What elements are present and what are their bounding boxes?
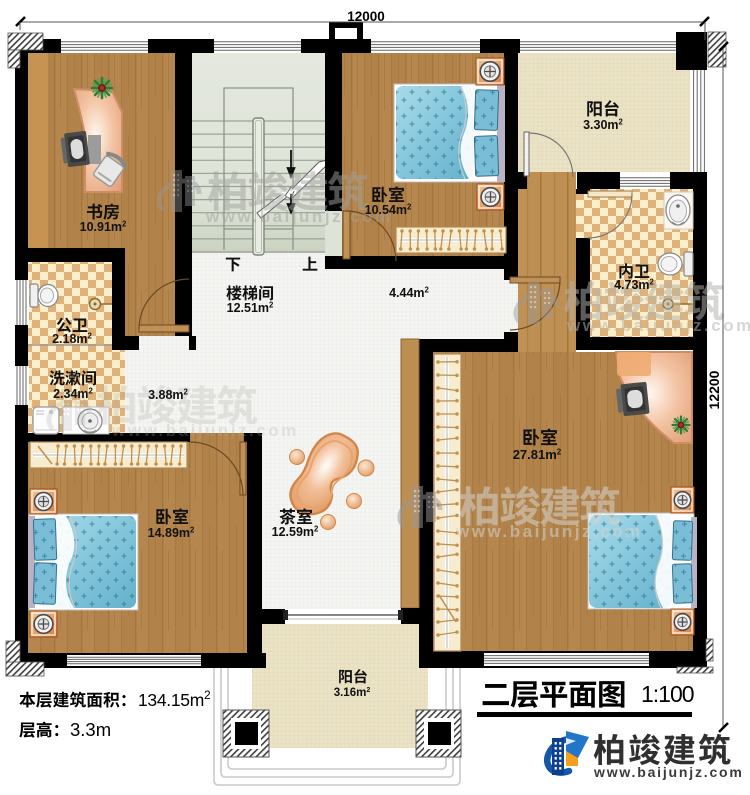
- svg-text:12.59m2: 12.59m2: [272, 525, 319, 539]
- svg-text:12200: 12200: [706, 370, 722, 409]
- svg-text:www.baijunjz.com: www.baijunjz.com: [593, 764, 744, 780]
- svg-text:12.51m2: 12.51m2: [227, 301, 274, 315]
- svg-text:27.81m2: 27.81m2: [513, 447, 562, 462]
- svg-text:134.15m2: 134.15m2: [138, 688, 211, 710]
- svg-text:1:100: 1:100: [641, 681, 694, 707]
- svg-text:4.44m2: 4.44m2: [389, 286, 429, 300]
- svg-text:3.88m2: 3.88m2: [148, 388, 188, 402]
- svg-text:2.18m2: 2.18m2: [52, 332, 92, 346]
- svg-text:2.34m2: 2.34m2: [53, 387, 93, 401]
- svg-text:12000: 12000: [347, 9, 385, 24]
- svg-text:www.baijunjz.com: www.baijunjz.com: [111, 421, 299, 440]
- svg-text:14.89m2: 14.89m2: [148, 526, 195, 540]
- svg-text:3.3m: 3.3m: [70, 719, 111, 740]
- svg-text:4.73m2: 4.73m2: [614, 278, 654, 292]
- svg-text:10.91m2: 10.91m2: [80, 220, 127, 234]
- svg-text:www.baijunjz.com: www.baijunjz.com: [566, 316, 750, 335]
- svg-text:10.54m2: 10.54m2: [365, 203, 412, 217]
- svg-text:3.30m2: 3.30m2: [583, 118, 623, 132]
- svg-text:www.baijunjz.com: www.baijunjz.com: [455, 522, 643, 541]
- svg-text:3.16m2: 3.16m2: [334, 686, 371, 699]
